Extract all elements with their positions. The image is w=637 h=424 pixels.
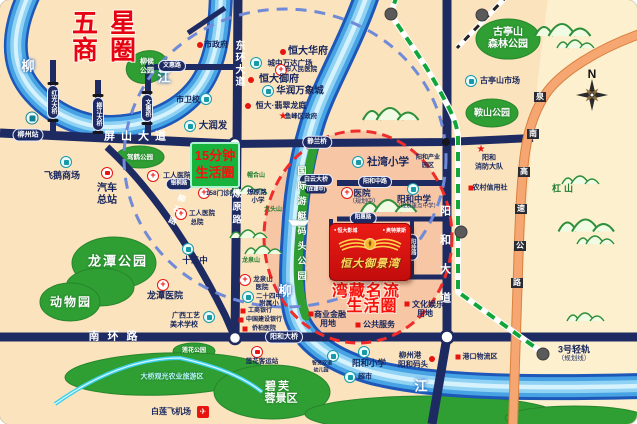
rail-station-dot-topright [476, 9, 489, 22]
port-logistics: 港口物流区 [463, 354, 498, 361]
planned-hospital-icon: + [341, 187, 353, 199]
health-school: 市卫校 [176, 96, 200, 104]
feie-mall: 飞鹅商场 [44, 172, 80, 181]
liaoyuan-road: 燎原路 [232, 189, 241, 228]
jiutou-hill: 九头山 [264, 207, 282, 213]
project-tag-left: 恒大影城 [334, 227, 357, 234]
yanghe-middle-school: 阳和中学 [397, 195, 431, 204]
life-circle-15min-line1: 15分钟 [195, 148, 235, 165]
shewan-primary: 社湾小学 [367, 157, 409, 168]
qiaobai-hospital-sq-icon [243, 327, 248, 332]
bus-terminal-line1: 汽车 [97, 184, 117, 194]
supermarket-icon [344, 371, 356, 383]
planned-hospital: 医院 [353, 189, 370, 198]
mixc: 华润万象城 [276, 86, 324, 96]
culture-land-line1: 文化娱乐 [412, 301, 444, 309]
yanghe-primary-icon [358, 346, 370, 358]
kindergarten-line2: 幼儿园 [313, 369, 328, 374]
worker-hospital-hq-line1: 工人医院 [189, 211, 215, 218]
river-name-jiang-east: 江 [414, 380, 427, 393]
hongguang-bridge-pill: 红光大桥 [47, 85, 59, 119]
mixc-icon [262, 85, 274, 97]
donghuan-avenue: 东环大道 [233, 40, 243, 88]
yanghe-bridge-pill: 阳和大桥 [265, 331, 303, 344]
ccb-sq-icon [239, 318, 244, 323]
hengda-feicui: 恒大·翡翠龙庭 [256, 102, 307, 110]
jiahe-park: 驾鹤公园 [127, 155, 153, 162]
liujiang-bridge-pill: 柳江大桥 [92, 97, 104, 131]
fire-brigade-line2: 消防大队 [475, 164, 503, 171]
vip-circle-line2: 生活圈 [346, 299, 397, 315]
biz-circle-title-line1: 五星 [60, 10, 148, 36]
yufeng-gov: 鱼峰区政府 [285, 114, 318, 121]
agri-tourism-zone: 大桥观光农业旅游区 [141, 374, 204, 381]
health-school-icon [200, 93, 212, 105]
jinglan-bridge-pill: 静兰桥 [302, 136, 332, 149]
port-wharf-line1: 柳州港 [399, 351, 422, 359]
bus-terminal-line2: 总站 [97, 196, 117, 206]
rail-station-dot-mid [455, 226, 468, 239]
kindergarten-line1: 智贤双语 [312, 362, 332, 367]
icbc-sq-icon [241, 309, 246, 314]
longtan-park: 龙潭公园 [88, 255, 148, 268]
arts-school-line2: 美术学校 [170, 322, 198, 329]
bailian-airport: 白莲飞机场 [151, 408, 191, 416]
yanghe-primary: 阳和小学 [352, 359, 386, 368]
school13-icon [182, 243, 194, 255]
expressway-ch-1: 泉 [534, 92, 546, 102]
wenhui-bridge-pill: 文惠桥 [141, 94, 153, 122]
public-service-sq-icon [356, 323, 361, 328]
liuhou-park-line1: 柳侯 [140, 59, 154, 66]
school24-line2: 附属小 [259, 301, 279, 308]
hengda-yufu-dot-icon [248, 77, 254, 83]
longquan-hill: 龙泉山 [242, 258, 260, 264]
rail3-label: 3号轻轨 [558, 346, 590, 355]
school13: 十三中 [182, 256, 208, 265]
expressway-ch-6: 路 [511, 278, 523, 288]
fire-brigade-star-icon: ★ [477, 145, 486, 155]
rail3-station-dot [537, 348, 550, 361]
project-name: 恒大御景湾 [340, 255, 400, 271]
gutingshan-market-icon [465, 75, 477, 87]
bifurong-line2: 蓉景区 [265, 394, 298, 405]
culture-land-sq-icon [405, 302, 410, 307]
gutingshan-market: 古亭山市场 [480, 77, 520, 85]
lianhua-station-icon [251, 346, 263, 358]
port-logistics-sq-icon [456, 355, 461, 360]
longquanshan-hospital-line2: 医院 [256, 285, 269, 292]
liuzhou-location-map: 五星商圈柳江柳江市政府文惠路柳侯公园红光大桥柳江大桥文惠桥市卫校大润发屏山大道东… [0, 0, 637, 424]
port-wharf-line2: 阳和码头 [398, 360, 428, 368]
river-name-liu-west: 柳 [21, 60, 34, 73]
river-name-jiang-west: 江 [157, 71, 170, 84]
hengda-huafu-dot-icon [280, 49, 286, 55]
map-labels-layer: 五星商圈柳江柳江市政府文惠路柳侯公园红光大桥柳江大桥文惠桥市卫校大润发屏山大道东… [0, 0, 637, 424]
gutingshan-forest-line1: 古亭山 [493, 28, 523, 38]
worker-hospital-icon: + [147, 170, 159, 182]
longquanshan-hospital-icon: + [239, 274, 251, 286]
shewan-primary-icon [352, 156, 364, 168]
finance-land-sq-icon [309, 312, 314, 317]
liaoyuan-primary-line1: 燎原路 [247, 190, 267, 197]
ccb-bank: 中国建设银行 [246, 317, 282, 323]
longquanshan-hospital-line1: 龙泉山 [253, 277, 273, 284]
city-gov: 市政府 [204, 41, 228, 49]
project-tag-right: 奥特莱斯 [383, 227, 406, 234]
expressway-ch-2: 南 [527, 129, 539, 139]
liuhou-park-line2: 公园 [140, 68, 154, 75]
wanda-plaza-icon [250, 57, 262, 69]
darunfa: 大润发 [199, 121, 228, 131]
hengda-huafu: 恒大华府 [288, 47, 328, 57]
renmin-hospital: 市人民医院 [285, 67, 318, 74]
zoo: 动物园 [50, 296, 92, 308]
hengda-feicui-dot-icon [245, 103, 251, 109]
bifurong-line1: 碧芙 [265, 382, 291, 393]
icbc-bank: 工商银行 [248, 308, 272, 314]
life-circle-15min-line2: 生活圈 [195, 165, 234, 182]
gutingshan-forest-line2: 森林公园 [488, 40, 528, 50]
compass-n-label: N [588, 68, 597, 80]
arts-school-line1: 广西工艺 [172, 313, 200, 320]
worker-hospital-hq-line2: 总院 [191, 220, 204, 227]
school24-icon [242, 291, 254, 303]
baiyun-bridge-note: (在建中) [305, 187, 327, 194]
liuzhou-station-pill: 柳州站 [13, 129, 44, 142]
liaoyuan-primary-line2: 小学 [252, 198, 265, 205]
lianhua-park: 莲花公园 [182, 348, 206, 354]
rail-station-dot-top [385, 8, 398, 21]
yanghe-middle-school-note: （规划重点中学） [395, 204, 439, 210]
project-badge-hengda-yujingwan: 恒大影城 奥特莱斯 恒大御景湾 [329, 223, 411, 281]
biz-circle-title-line2: 商圈 [60, 37, 148, 63]
finance-land-line2: 用地 [320, 320, 336, 328]
yintong-road-pill: 银桐路 [166, 178, 193, 190]
yanghe-mid-road-pill: 阳和中路 [358, 176, 392, 188]
feie-mall-icon [60, 156, 72, 168]
nanhuan-road: 南环路 [89, 332, 146, 343]
arts-school-icon [203, 311, 215, 323]
yanghe-industry-line1: 阳和产业 [416, 155, 440, 161]
planned-hospital-note: （规划中） [349, 199, 379, 205]
rural-credit: 农村信用社 [473, 185, 508, 192]
lianhua-station: 莲花客运站 [246, 359, 279, 366]
gangshan-hill: 杠山 [552, 185, 576, 194]
longtan-hospital: 龙潭医院 [147, 292, 183, 301]
expressway-ch-3: 高 [518, 167, 530, 177]
gold-wings-icon [337, 234, 403, 254]
fire-brigade-line1: 阳和 [482, 155, 496, 162]
wenhui-road-pill: 文惠路 [158, 60, 186, 72]
anshan-park: 鞍山公园 [474, 109, 510, 118]
darunfa-icon [184, 120, 196, 132]
finance-land-line1: 商业金融 [314, 311, 346, 319]
yacht-quay-park: 国际游艇码头公园 [297, 166, 306, 286]
port-wharf-dot-icon [429, 356, 435, 362]
hengda-yufu: 恒大御府 [259, 75, 299, 85]
yanghe-industry-line2: 园区 [422, 163, 434, 169]
city-gov-dot-icon [197, 42, 203, 48]
rail3-note: （规划线） [558, 356, 591, 363]
pingshan-avenue: 屏山大道 [104, 132, 172, 143]
bailian-airport-icon: ✈ [197, 406, 209, 418]
bus-terminal-icon [101, 167, 113, 179]
maohe-hill: 帽合山 [247, 173, 265, 179]
longtan-hospital-icon: + [157, 279, 169, 291]
expressway-ch-5: 公 [514, 241, 526, 251]
train-station-icon [26, 112, 39, 125]
life-circle-15min-badge: 15分钟 生活圈 [190, 142, 240, 188]
culture-land-line2: 用地 [417, 310, 433, 318]
supermarket: 超市 [358, 374, 372, 381]
public-service: 公共服务 [363, 321, 395, 329]
expressway-ch-4: 速 [515, 204, 527, 214]
